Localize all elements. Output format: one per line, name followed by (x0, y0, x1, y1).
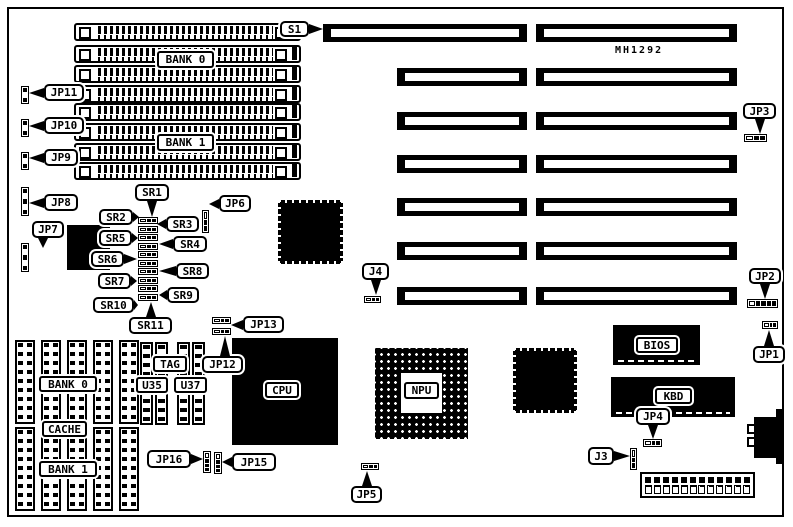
simm-pins-row (98, 68, 273, 76)
jumper-pin (23, 88, 27, 92)
power-divider (646, 485, 749, 487)
power-pin (654, 477, 660, 483)
callout-pointer (764, 330, 774, 346)
callout-pointer (29, 121, 44, 131)
callout-pointer (146, 302, 156, 317)
jumper-jp15 (214, 452, 222, 474)
jumper-pin (23, 255, 27, 259)
isa-slot-inner (405, 160, 519, 168)
cpu-label: CPU (265, 382, 299, 398)
jumper-pin (147, 228, 151, 231)
jumper-pin (216, 469, 220, 472)
power-pin (672, 477, 678, 483)
jumper-jp1 (762, 321, 778, 329)
bios-chip-pins (618, 360, 695, 362)
callout-jp3: JP3 (743, 103, 776, 119)
power-pin (717, 477, 723, 483)
callout-s1: S1 (280, 21, 309, 37)
jumper-pin (204, 212, 207, 219)
jumper-pin (23, 189, 27, 193)
callout-pointer (614, 451, 630, 461)
jumper-pin (23, 245, 27, 249)
label-bank-0: BANK 0 (157, 51, 214, 68)
callout-jp7: JP7 (32, 221, 64, 238)
isa-slot-inner (405, 73, 519, 81)
isa-slot-inner (544, 160, 729, 168)
power-pin (663, 477, 669, 483)
jumper-pin (23, 154, 27, 158)
jumper-pin (147, 262, 151, 265)
callout-sr8: SR8 (176, 263, 209, 279)
jumper-pin (23, 126, 27, 130)
callout-pointer (191, 454, 203, 464)
jumper-pin (767, 301, 771, 306)
simm-pins-row (98, 126, 273, 134)
jumper-pin (770, 323, 773, 327)
simm-end-key (292, 67, 297, 80)
callout-jp4: JP4 (636, 408, 670, 425)
label-u35: U35 (136, 377, 168, 393)
jumper-pin (147, 219, 151, 222)
isa-slot-inner (405, 247, 519, 255)
jumper-jp4 (643, 439, 662, 447)
jumper-pin (152, 236, 156, 239)
isa-slot-inner (544, 247, 729, 255)
jumper-pin (147, 253, 151, 256)
callout-jp11: JP11 (44, 84, 84, 101)
jumper-pin (764, 323, 769, 327)
callout-jp10: JP10 (44, 117, 84, 134)
simm-clip (79, 49, 91, 61)
jumper-pin (23, 93, 27, 97)
jumper-pin (204, 226, 207, 231)
label-bank-1: BANK 1 (39, 461, 97, 477)
power-pin-row (645, 477, 750, 483)
power-pin (699, 477, 705, 483)
jumper-pin (152, 287, 156, 290)
callout-sr1: SR1 (135, 184, 169, 201)
jumper-pin (23, 199, 27, 203)
jumper-pin (23, 131, 27, 135)
isa-slot-inner (544, 117, 729, 125)
jumper-j4 (364, 296, 381, 303)
label-cache: CACHE (42, 421, 87, 437)
simm-pins-row (98, 97, 273, 101)
simm-end-key (292, 145, 297, 158)
callout-sr6: SR6 (91, 251, 124, 267)
callout-sr10: SR10 (93, 297, 134, 313)
callout-pointer (755, 119, 765, 134)
jumper-pin (204, 220, 207, 225)
jumper-pin (23, 164, 27, 168)
jumper-pin (225, 330, 229, 333)
power-pin (744, 477, 750, 483)
isa-slot-inner (544, 29, 729, 37)
jumper-pin (221, 330, 225, 333)
jumper-pin (140, 245, 146, 248)
simm-socket (74, 85, 301, 103)
jumper-pin (23, 159, 27, 163)
jumper-pin (760, 136, 765, 140)
simm-pins-row (98, 106, 273, 114)
jumper-pin (632, 450, 635, 457)
isa-slot (536, 68, 737, 86)
isa-slot-inner (544, 73, 729, 81)
jumper-jp2 (747, 299, 778, 308)
simm-clip (79, 147, 91, 159)
jumper-pin (756, 301, 760, 306)
callout-jp1: JP1 (753, 346, 785, 363)
jumper-pin (147, 287, 151, 290)
jumper-pin (772, 301, 776, 306)
kbd-chip-label: KBD (655, 388, 692, 404)
simm-clip (275, 147, 287, 159)
isa-slot (397, 112, 527, 130)
keyboard-din-step (776, 456, 784, 464)
isa-slot-inner (405, 203, 519, 211)
power-pin (690, 477, 696, 483)
qfp-chip (513, 348, 577, 413)
jumper-pin (152, 219, 156, 222)
jumper-pin (205, 459, 209, 462)
callout-pointer (147, 201, 157, 217)
jumper-pin (216, 460, 220, 463)
isa-slot (536, 24, 737, 42)
callout-pointer (38, 238, 48, 248)
keyboard-din-tab (747, 437, 756, 447)
isa-slot (397, 155, 527, 173)
callout-jp5: JP5 (351, 486, 382, 503)
jumper-jp10 (21, 119, 29, 137)
callout-pointer (29, 198, 44, 208)
simm-pins-row (98, 77, 273, 81)
keyboard-din-step (776, 409, 784, 418)
jumper-pin (374, 465, 377, 468)
callout-pointer (760, 284, 770, 299)
power-pin (681, 477, 687, 483)
callout-sr11: SR11 (129, 317, 172, 334)
simm-socket (74, 103, 301, 121)
jumper-jp13 (212, 317, 231, 324)
jumper-pin (23, 250, 27, 254)
jumper-sr8 (138, 277, 158, 284)
simm-socket (74, 23, 301, 41)
jumper-pin (152, 279, 156, 282)
jumper-pin (147, 270, 151, 273)
jumper-pin (140, 287, 146, 290)
jumper-pin (205, 468, 209, 471)
simm-clip (275, 89, 287, 101)
callout-sr4: SR4 (173, 236, 207, 252)
jumper-pin (214, 319, 220, 322)
jumper-pin (376, 298, 379, 301)
jumper-pin (746, 136, 753, 140)
simm-pins-row (98, 35, 273, 39)
jumper-pin (23, 194, 27, 198)
jumper-pin (773, 323, 776, 327)
isa-slot (536, 155, 737, 173)
isa-slot (397, 198, 527, 216)
callout-pointer (371, 280, 381, 295)
callout-sr7: SR7 (98, 273, 131, 289)
callout-pointer (131, 276, 137, 286)
isa-slot (397, 68, 527, 86)
jumper-jp16 (203, 451, 211, 473)
callout-sr5: SR5 (99, 230, 132, 246)
jumper-jp5 (361, 463, 379, 470)
jumper-pin (140, 279, 146, 282)
jumper-pin (652, 441, 656, 445)
callout-pointer (132, 233, 138, 243)
callout-pointer (231, 320, 243, 330)
jumper-sr7 (138, 268, 158, 275)
jumper-sr2 (138, 226, 158, 233)
isa-slot (536, 287, 737, 305)
chipset-note: MH1292 (615, 45, 663, 56)
jumper-pin (147, 236, 151, 239)
jumper-jp8 (21, 187, 29, 216)
jumper-pin (632, 463, 635, 468)
keyboard-din-tab (747, 424, 756, 434)
jumper-pin (205, 453, 209, 458)
isa-slot (536, 198, 737, 216)
jumper-pin (152, 245, 156, 248)
jumper-pin (140, 236, 146, 239)
jumper-pin (205, 464, 209, 467)
jumper-pin (216, 465, 220, 468)
jumper-pin (23, 266, 27, 270)
jumper-sr6 (138, 260, 158, 267)
label-u37: U37 (174, 377, 207, 393)
jumper-jp7 (21, 243, 29, 272)
callout-pointer (159, 266, 176, 276)
simm-clip (275, 69, 287, 81)
callout-sr9: SR9 (167, 287, 199, 303)
motherboard-diagram: MH1292 CPUNPUBIOSKBDBANK 0BANK 1BANK 0CA… (0, 0, 793, 527)
cache-dip-socket (119, 427, 139, 511)
simm-clip (275, 127, 287, 139)
jumper-jp3 (744, 134, 767, 142)
label-bank-0: BANK 0 (39, 376, 97, 392)
simm-clip (79, 69, 91, 81)
jumper-jp12 (212, 328, 231, 335)
jumper-pin (221, 319, 225, 322)
jumper-pin (152, 270, 156, 273)
callout-pointer (159, 239, 173, 249)
jumper-pin (369, 465, 372, 468)
simm-clip (275, 166, 287, 178)
jumper-pin (147, 245, 151, 248)
jumper-pin (761, 301, 765, 306)
simm-end-key (292, 87, 297, 100)
power-pin (735, 477, 741, 483)
jumper-pin (140, 296, 146, 299)
callout-jp16: JP16 (147, 450, 191, 468)
callout-jp13: JP13 (243, 316, 284, 333)
cache-dip-socket (15, 340, 35, 424)
jumper-pin (140, 228, 146, 231)
isa-slot (323, 24, 527, 42)
jumper-pin (214, 330, 220, 333)
jumper-pin (363, 465, 368, 468)
jumper-pin (147, 279, 151, 282)
jumper-pin (372, 298, 375, 301)
callout-pointer (220, 336, 230, 356)
jumper-sr4 (138, 243, 158, 250)
callout-pointer (134, 300, 138, 310)
callout-jp2: JP2 (749, 268, 781, 284)
jumper-j3 (630, 448, 637, 470)
callout-pointer (133, 212, 139, 222)
isa-slot (536, 242, 737, 260)
isa-slot-inner (405, 117, 519, 125)
isa-slot-inner (331, 29, 519, 37)
isa-slot (536, 112, 737, 130)
jumper-sr5 (138, 251, 158, 258)
simm-pins-row (98, 88, 273, 96)
jumper-pin (140, 253, 146, 256)
simm-end-key (292, 125, 297, 138)
callout-sr2: SR2 (99, 209, 133, 225)
jumper-pin (23, 261, 27, 265)
callout-j3: J3 (588, 447, 614, 465)
simm-clip (79, 166, 91, 178)
simm-end-key (292, 47, 297, 60)
jumper-pin (140, 262, 146, 265)
simm-clip (275, 107, 287, 119)
jumper-pin (656, 441, 660, 445)
callout-pointer (362, 471, 372, 486)
callout-jp9: JP9 (44, 149, 78, 166)
callout-pointer (29, 153, 44, 163)
power-pin (708, 477, 714, 483)
callout-j4: J4 (362, 263, 389, 280)
callout-pointer (222, 457, 232, 467)
power-pin (726, 477, 732, 483)
isa-slot-inner (544, 203, 729, 211)
jumper-pin (645, 441, 651, 445)
jumper-pin (749, 301, 755, 306)
bios-chip-label: BIOS (636, 337, 678, 353)
callout-pointer (309, 24, 323, 34)
jumper-pin (23, 210, 27, 214)
callout-jp12: JP12 (202, 356, 243, 373)
simm-pins-row (98, 155, 273, 159)
jumper-jp9 (21, 152, 29, 170)
isa-slot-inner (544, 292, 729, 300)
callout-sr3: SR3 (166, 216, 199, 232)
label-tag: TAG (153, 356, 187, 372)
callout-jp15: JP15 (232, 453, 276, 471)
simm-end-key (292, 164, 297, 177)
callout-pointer (209, 199, 219, 209)
jumper-pin (147, 296, 151, 299)
callout-pointer (157, 219, 166, 229)
jumper-pin (23, 98, 27, 102)
jumper-pin (632, 458, 635, 463)
callout-pointer (29, 88, 44, 98)
jumper-sr1 (138, 217, 158, 224)
simm-pins-row (98, 115, 273, 119)
simm-pins-row (98, 174, 273, 178)
jumper-sr10 (138, 294, 158, 301)
callout-pointer (124, 254, 137, 264)
power-pin (645, 477, 651, 483)
jumper-sr3 (138, 234, 158, 241)
jumper-sr9 (138, 285, 158, 292)
jumper-pin (23, 121, 27, 125)
kbd-chip-pins (616, 412, 730, 414)
jumper-pin (152, 296, 156, 299)
jumper-pin (23, 205, 27, 209)
callout-jp6: JP6 (219, 195, 251, 212)
callout-jp8: JP8 (44, 194, 78, 211)
callout-pointer (159, 290, 167, 300)
isa-slot (397, 287, 527, 305)
jumper-pin (754, 136, 759, 140)
label-bank-1: BANK 1 (157, 134, 214, 151)
simm-socket (74, 162, 301, 180)
simm-pins-row (98, 26, 273, 34)
power-connector (640, 472, 755, 498)
keyboard-din-connector (754, 417, 784, 458)
jumper-pin (140, 219, 146, 222)
simm-pins-row (98, 165, 273, 173)
callout-pointer (648, 425, 658, 439)
isa-slot-inner (405, 292, 519, 300)
jumper-pin (140, 270, 146, 273)
jumper-jp6 (202, 210, 209, 233)
simm-clip (79, 27, 91, 39)
simm-clip (275, 49, 287, 61)
jumper-pin (152, 253, 156, 256)
isa-slot (397, 242, 527, 260)
jumper-pin (216, 454, 220, 459)
simm-end-key (292, 105, 297, 118)
jumper-pin (225, 319, 229, 322)
jumper-pin (152, 262, 156, 265)
cache-dip-socket (15, 427, 35, 511)
jumper-jp11 (21, 86, 29, 104)
npu-label: NPU (404, 382, 439, 399)
jumper-pin (366, 298, 371, 301)
qfp-chip (278, 200, 343, 264)
jumper-pin (152, 228, 156, 231)
